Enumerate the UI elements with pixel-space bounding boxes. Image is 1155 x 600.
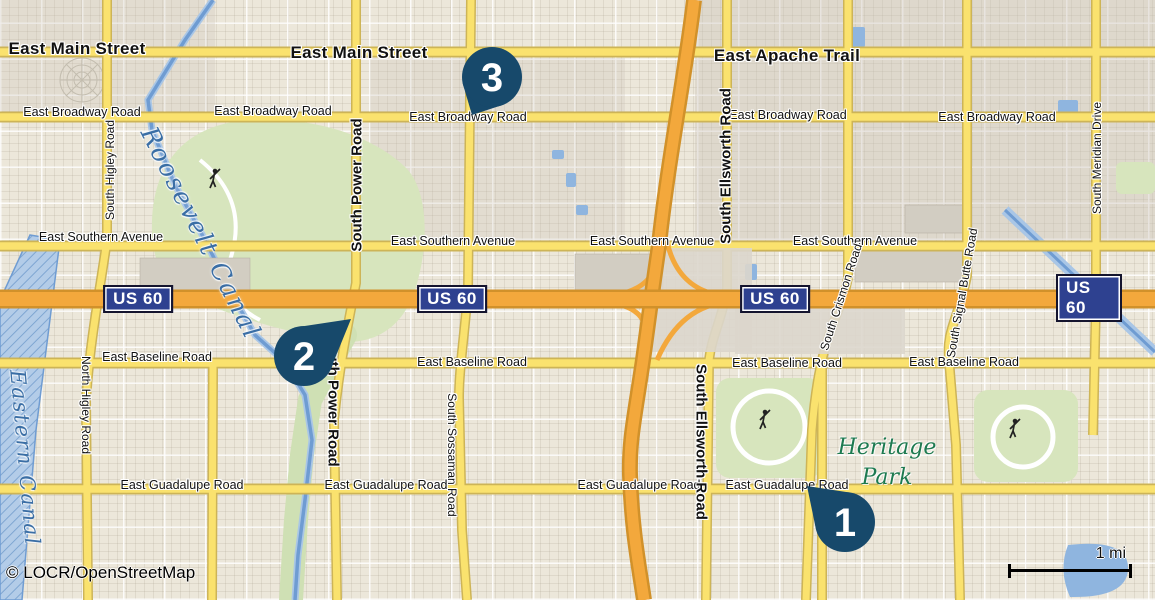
scale-line xyxy=(1008,569,1132,572)
map-pin-2[interactable]: 2 xyxy=(274,319,351,386)
markers-layer: 123 xyxy=(0,0,1155,600)
map-pin-1[interactable]: 1 xyxy=(807,486,875,552)
pin-number: 1 xyxy=(834,501,856,545)
scale-tick xyxy=(1129,564,1132,578)
scale-tick xyxy=(1008,564,1011,578)
scale-bar: 1 mi xyxy=(1008,545,1132,572)
map-pin-3[interactable]: 3 xyxy=(462,47,522,115)
map-canvas[interactable]: East Main StreetEast Main StreetEast Apa… xyxy=(0,0,1155,600)
map-attribution: © LOCR/OpenStreetMap xyxy=(6,563,195,583)
scale-label: 1 mi xyxy=(1008,545,1132,563)
pin-number: 3 xyxy=(481,56,503,100)
pin-number: 2 xyxy=(293,335,315,379)
